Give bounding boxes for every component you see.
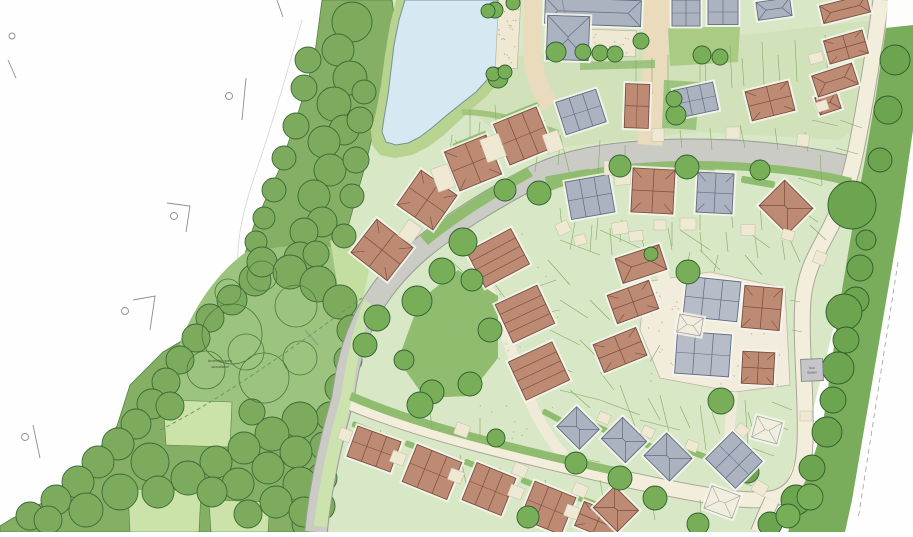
svg-text:Amenity open: Amenity open xyxy=(208,358,232,363)
svg-text:Station: Station xyxy=(807,370,817,374)
svg-text:woodland: woodland xyxy=(211,364,228,369)
